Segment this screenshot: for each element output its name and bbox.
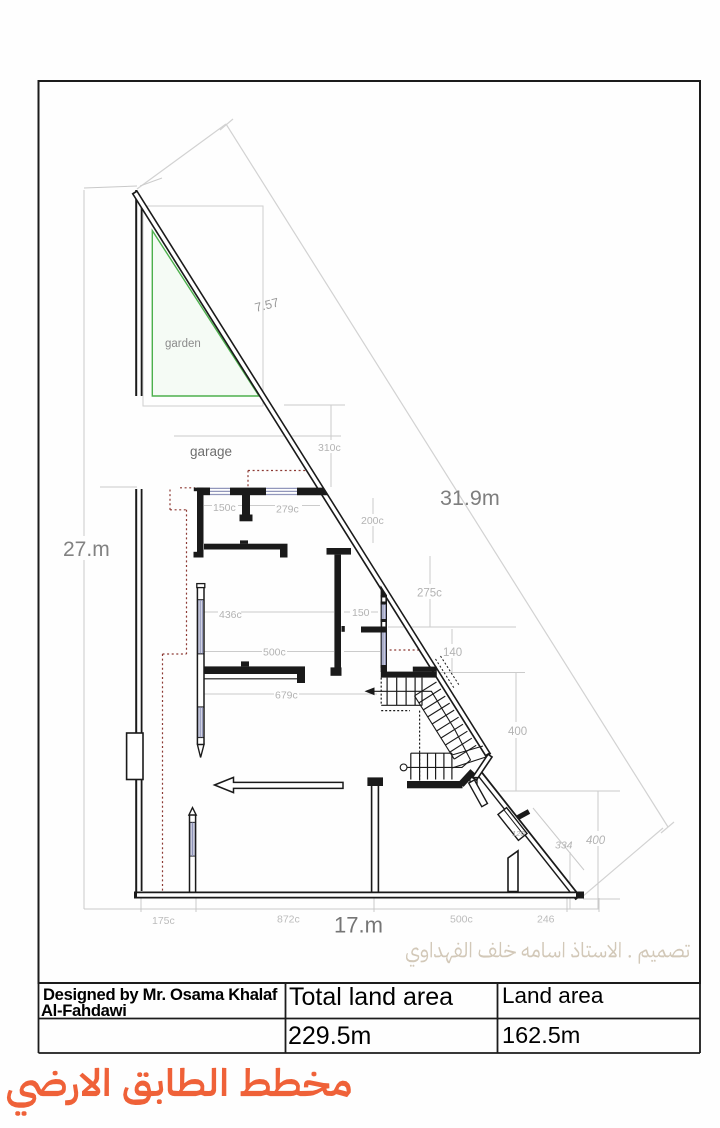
svg-text:400: 400: [508, 726, 527, 738]
svg-text:500c: 500c: [263, 647, 286, 659]
svg-text:31.9m: 31.9m: [440, 486, 500, 510]
svg-text:310c: 310c: [318, 442, 341, 454]
svg-text:275c: 275c: [417, 588, 442, 600]
svg-text:150c: 150c: [213, 502, 236, 514]
svg-text:246: 246: [537, 914, 555, 926]
svg-text:500c: 500c: [450, 914, 473, 926]
svg-text:200c: 200c: [361, 515, 384, 527]
svg-text:400: 400: [586, 835, 606, 847]
svg-text:Land area: Land area: [502, 983, 604, 1008]
svg-text:279c: 279c: [276, 504, 299, 516]
svg-text:436c: 436c: [219, 609, 242, 621]
svg-text:175c: 175c: [152, 915, 175, 927]
svg-text:garden: garden: [165, 338, 201, 350]
svg-text:140: 140: [443, 647, 462, 659]
svg-text:162.5m: 162.5m: [502, 1022, 580, 1048]
svg-text:garage: garage: [190, 444, 232, 459]
svg-text:150: 150: [352, 607, 370, 619]
svg-text:229.5m: 229.5m: [288, 1022, 371, 1050]
svg-text:872c: 872c: [277, 914, 300, 926]
svg-text:Total land area: Total land area: [289, 983, 453, 1011]
svg-text:679c: 679c: [275, 690, 298, 702]
svg-text:17.m: 17.m: [334, 913, 383, 938]
svg-text:Al-Fahdawi: Al-Fahdawi: [41, 1001, 127, 1020]
svg-text:27.m: 27.m: [63, 538, 110, 561]
svg-text:334: 334: [555, 840, 573, 852]
svg-text:120: 120: [512, 829, 525, 838]
